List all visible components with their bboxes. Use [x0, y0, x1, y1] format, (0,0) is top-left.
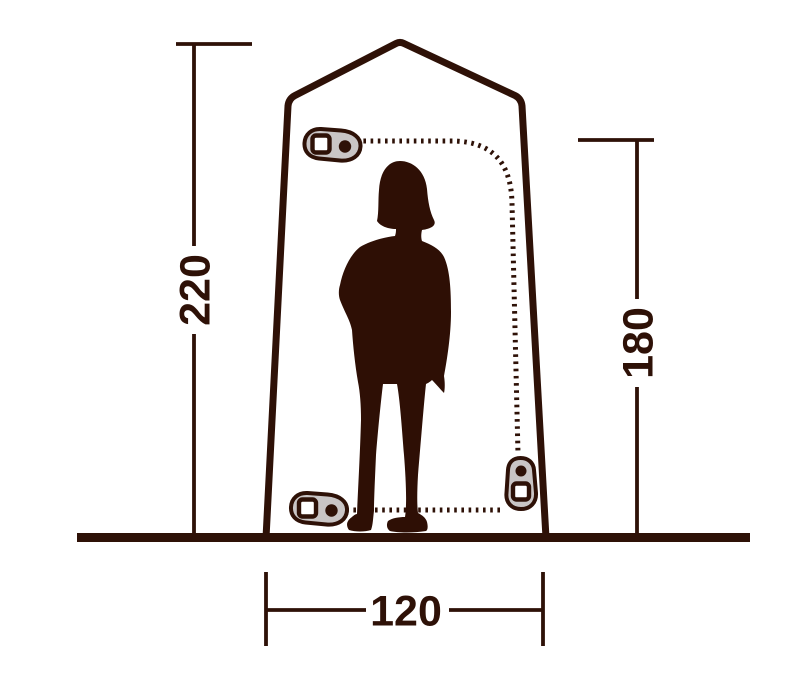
dimension-bottom-width-label: 120	[370, 587, 442, 635]
dimension-left-height: 220	[171, 44, 252, 537]
dimension-left-height-label: 220	[171, 254, 219, 326]
zipper-pull-bottom-right-icon	[506, 458, 536, 509]
dimension-right-height-label: 180	[614, 307, 662, 379]
ground-line	[77, 533, 750, 542]
diagram-canvas: 220 180 120	[0, 0, 809, 682]
zipper-pull-top-left-icon	[304, 129, 360, 161]
person-silhouette	[339, 161, 451, 533]
dimension-right-height: 180	[578, 140, 662, 537]
dimension-bottom-width: 120	[266, 572, 543, 646]
tent-dimension-diagram: 220 180 120	[0, 0, 809, 682]
zipper-pull-bottom-left-icon	[291, 493, 347, 525]
